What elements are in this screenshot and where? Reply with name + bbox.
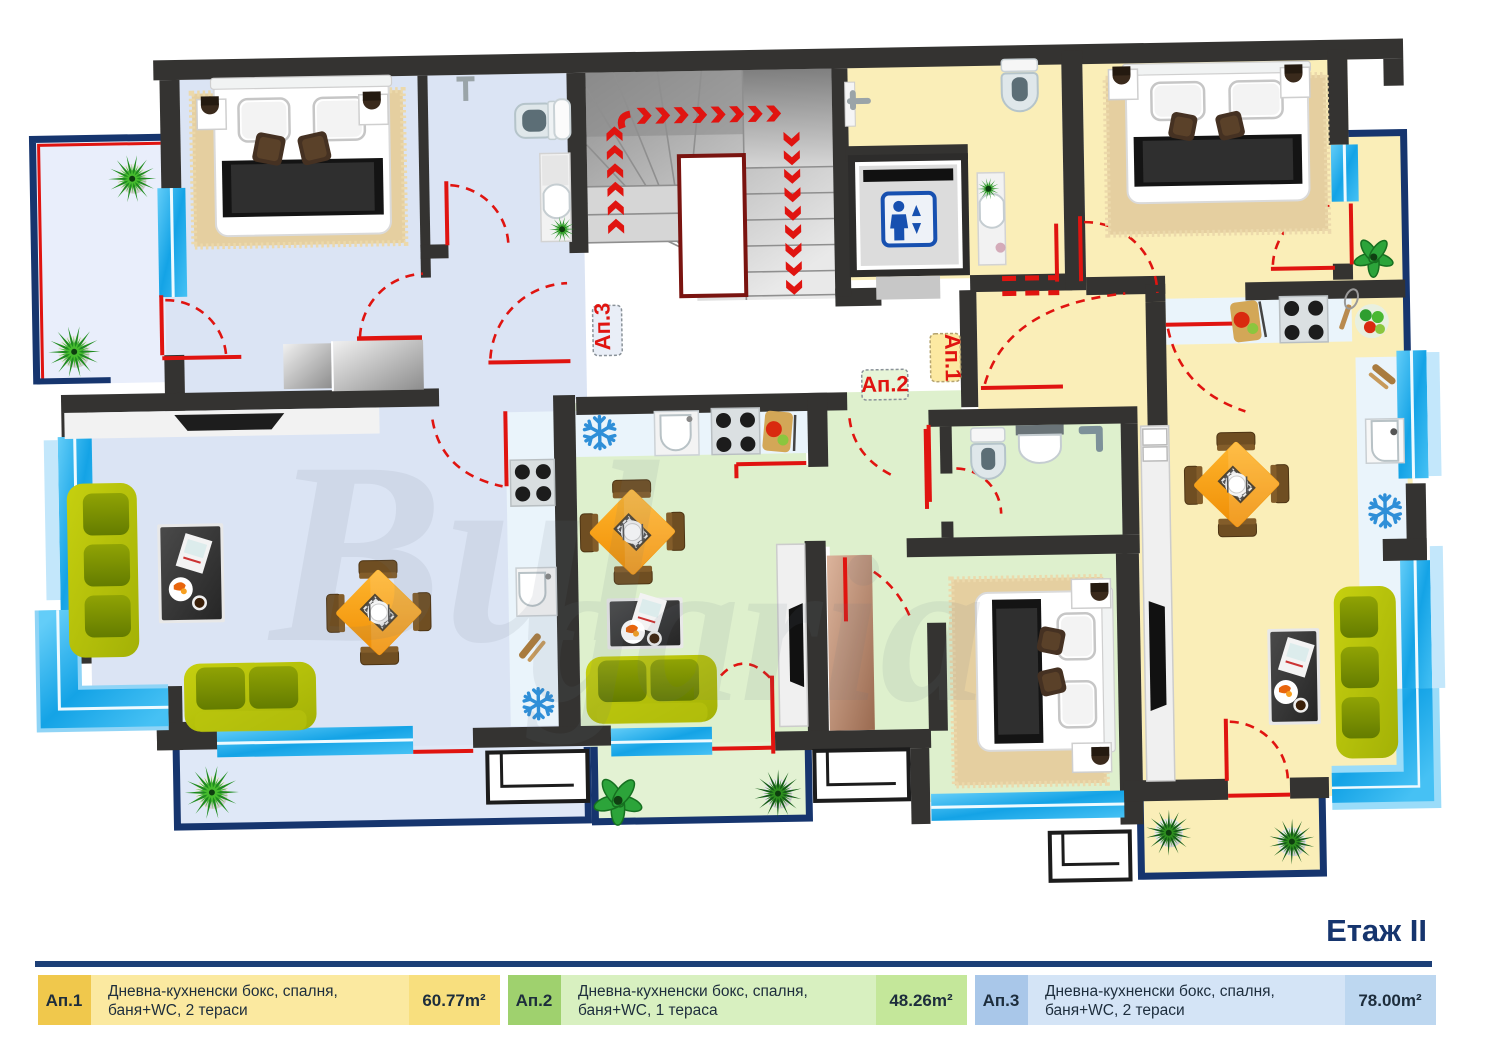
svg-text:Дневна-кухненски бокс, спалня,: Дневна-кухненски бокс, спалня, xyxy=(578,983,808,1000)
svg-text:Ап.2: Ап.2 xyxy=(516,991,553,1010)
svg-text:garia: garia xyxy=(526,514,985,746)
svg-text:Ап.3: Ап.3 xyxy=(589,303,615,351)
svg-text:Ап.1: Ап.1 xyxy=(940,333,966,381)
svg-text:48.26m²: 48.26m² xyxy=(889,991,953,1010)
svg-text:Дневна-кухненски бокс, спалня,: Дневна-кухненски бокс, спалня, xyxy=(108,983,338,1000)
svg-text:Ап.3: Ап.3 xyxy=(983,991,1020,1010)
svg-text:баня+WC, 2 тераси: баня+WC, 2 тераси xyxy=(108,1002,248,1019)
svg-text:60.77m²: 60.77m² xyxy=(422,991,486,1010)
svg-text:баня+WC, 1 тераса: баня+WC, 1 тераса xyxy=(578,1002,718,1019)
svg-text:Етаж II: Етаж II xyxy=(1326,913,1427,948)
svg-text:Ап.1: Ап.1 xyxy=(46,991,83,1010)
svg-text:баня+WC, 2 тераси: баня+WC, 2 тераси xyxy=(1045,1002,1185,1019)
svg-text:78.00m²: 78.00m² xyxy=(1358,991,1422,1010)
svg-text:Ап.2: Ап.2 xyxy=(861,371,909,397)
svg-text:Дневна-кухненски бокс, спалня,: Дневна-кухненски бокс, спалня, xyxy=(1045,983,1275,1000)
